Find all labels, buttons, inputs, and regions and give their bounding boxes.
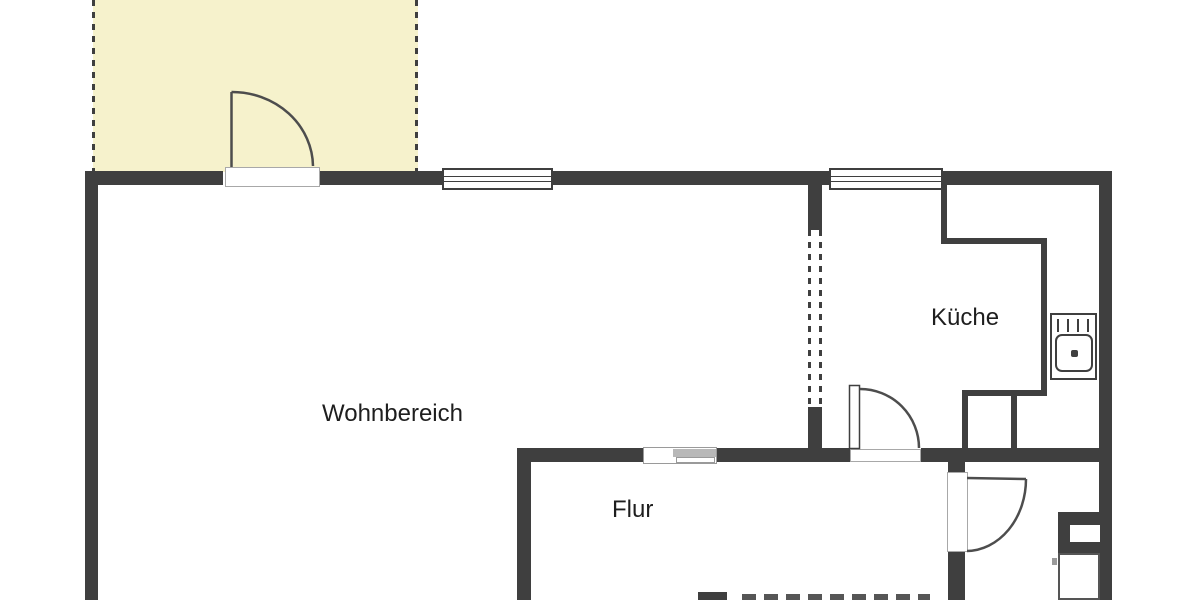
duct-shaft-hole — [1070, 525, 1100, 542]
sink-basin — [1055, 334, 1093, 372]
sink-drainer-tick — [1087, 319, 1089, 332]
sink-drainer-tick — [1067, 319, 1069, 332]
sink-drainer-tick — [1077, 319, 1079, 332]
floor-plan: Wohnbereich Küche Flur — [0, 0, 1200, 600]
balcony-dashed-edge-right — [415, 0, 418, 172]
sliding-door-icon — [643, 447, 717, 464]
kitchen-door-leaf — [850, 386, 860, 449]
bathroom-fixture — [1058, 553, 1100, 600]
kitchen-sink-icon — [1050, 313, 1097, 380]
kitchen-counter-edge — [941, 185, 947, 243]
balcony-door-threshold — [225, 167, 320, 187]
opening-dashed-edge-right — [819, 230, 822, 407]
wall-flur-top-2 — [717, 448, 850, 462]
opening-dashed-edge-left — [808, 230, 811, 407]
wall-flur-left — [517, 448, 531, 600]
kitchen-door-threshold — [850, 449, 921, 462]
wall-flur-top-1 — [517, 448, 643, 462]
wall-left — [85, 171, 98, 600]
kitchen-door-arc — [860, 389, 919, 448]
balcony-dashed-edge-left — [92, 0, 95, 172]
wall-mid-upper — [808, 185, 822, 230]
kitchen-counter-edge — [1041, 238, 1047, 396]
duct-shaft — [1058, 512, 1102, 553]
bathroom-door-leaf — [967, 478, 1026, 479]
wall-bath-left-lower — [948, 552, 965, 600]
sink-drainer-tick — [1057, 319, 1059, 332]
room-label-kueche: Küche — [931, 304, 999, 332]
wall-bottom-stub — [698, 592, 727, 600]
kitchen-counter-edge — [941, 238, 1047, 244]
wall-top-1 — [85, 171, 223, 185]
sink-drain — [1071, 350, 1078, 357]
room-label-flur: Flur — [612, 496, 653, 524]
wall-top-2 — [318, 171, 442, 185]
wall-flur-top-3 — [921, 448, 1099, 462]
wall-top-4 — [943, 171, 1112, 185]
kitchen-window-icon — [829, 168, 943, 190]
window-pane — [831, 176, 941, 182]
bathroom-door-arc — [967, 479, 1026, 551]
wall-bath-left-upper — [948, 462, 965, 472]
kitchen-counter-edge — [962, 390, 1047, 396]
bathroom-door-threshold — [947, 472, 968, 552]
kitchen-counter-edge — [1011, 390, 1017, 450]
balcony-area — [93, 0, 418, 172]
sliding-door-panel — [676, 457, 715, 463]
kitchen-counter-edge — [962, 390, 968, 450]
wall-top-3 — [553, 171, 829, 185]
window-pane — [444, 176, 551, 182]
room-label-wohnbereich: Wohnbereich — [322, 400, 463, 428]
sliding-door-panel — [673, 449, 716, 457]
bathroom-fixture-tick — [1052, 558, 1057, 565]
living-room-window-icon — [442, 168, 553, 190]
bottom-dashed-line — [742, 594, 930, 600]
